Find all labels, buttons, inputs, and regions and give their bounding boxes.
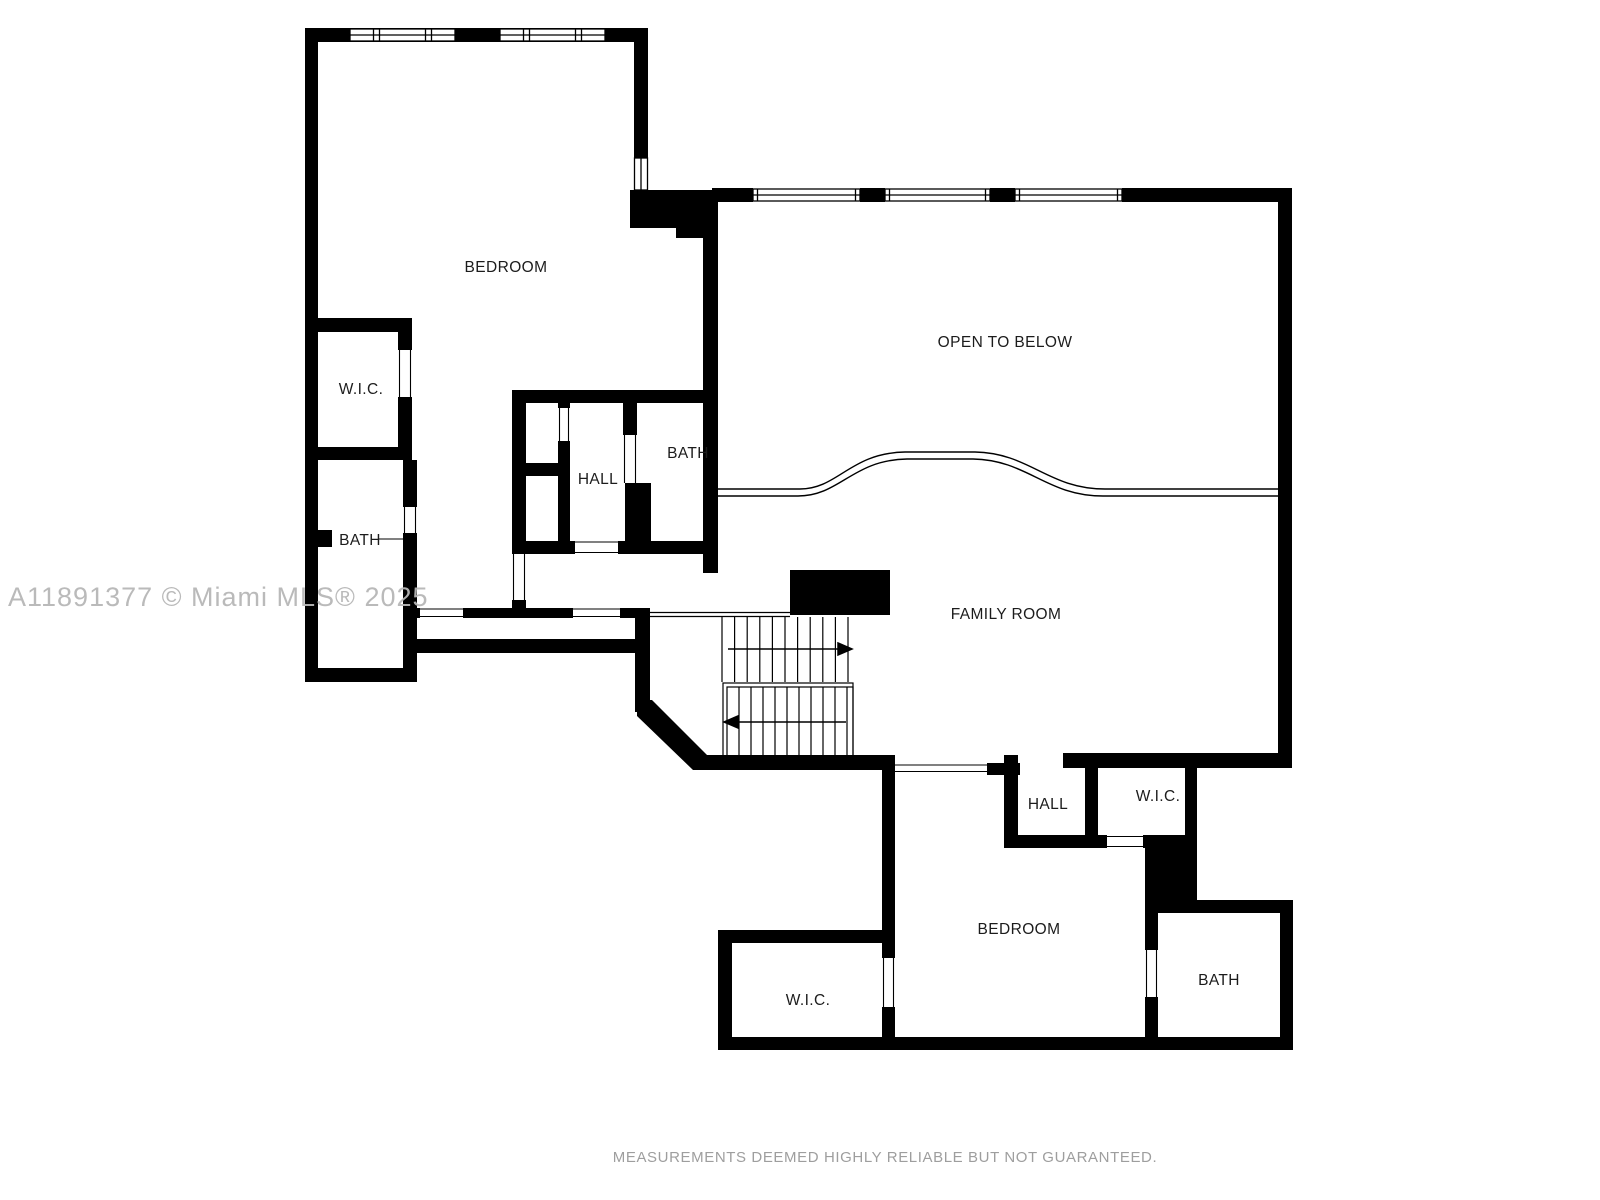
wall	[1280, 900, 1293, 1050]
stair-arrow-right-icon	[838, 643, 852, 655]
wall	[1085, 753, 1098, 848]
room-label-bath-upper-left: BATH	[339, 532, 381, 549]
window-icon	[885, 189, 990, 201]
wall	[512, 463, 560, 476]
wall	[512, 541, 575, 554]
wall	[1185, 753, 1197, 848]
wall	[1145, 913, 1158, 950]
wall	[882, 1007, 895, 1050]
room-label-family-room: FAMILY ROOM	[951, 606, 1062, 623]
wall	[512, 390, 718, 403]
wall	[718, 930, 895, 943]
window-glyphs	[350, 29, 1122, 201]
window-icon	[635, 158, 648, 190]
window-icon	[350, 29, 455, 41]
wall	[635, 608, 650, 712]
room-label-bedroom-lower: BEDROOM	[978, 921, 1061, 938]
wall	[403, 460, 417, 507]
wall	[990, 188, 1015, 202]
disclaimer-text: MEASUREMENTS DEEMED HIGHLY RELIABLE BUT …	[613, 1149, 1158, 1166]
wall	[1145, 848, 1197, 903]
stair-landing-wall	[790, 570, 890, 615]
room-label-wic-lower-left: W.I.C.	[786, 992, 831, 1009]
room-label-bath-upper-mid: BATH	[667, 445, 709, 462]
wall	[623, 390, 637, 435]
window-icon	[753, 189, 860, 201]
room-label-open-to-below: OPEN TO BELOW	[938, 334, 1073, 351]
wall	[703, 228, 718, 573]
wall	[620, 608, 650, 618]
floor-plan: BEDROOM W.I.C. BATH HALL BATH OPEN TO BE…	[0, 0, 1600, 1200]
wall	[305, 668, 417, 682]
walls	[305, 28, 1293, 1050]
wall	[558, 441, 570, 541]
stair-arrow-left-icon	[724, 716, 738, 728]
room-label-wic-upper-left: W.I.C.	[339, 381, 384, 398]
room-label-hall-upper: HALL	[578, 471, 618, 488]
wall	[410, 639, 650, 653]
wall	[634, 28, 648, 158]
room-labels: BEDROOM W.I.C. BATH HALL BATH OPEN TO BE…	[339, 259, 1240, 1009]
wall	[305, 318, 412, 332]
staircase	[650, 570, 890, 760]
room-label-wic-lower-right: W.I.C.	[1136, 788, 1181, 805]
wall	[630, 190, 718, 228]
wall	[318, 530, 332, 547]
wall	[860, 188, 885, 202]
mls-watermark: A11891377 © Miami MLS® 2025	[8, 582, 429, 612]
wall	[712, 188, 753, 202]
wall	[882, 755, 895, 958]
wall	[305, 447, 412, 460]
wall-diagonal	[637, 700, 707, 770]
room-label-bath-lower-right: BATH	[1198, 972, 1240, 989]
wall	[1278, 188, 1292, 768]
wall	[1143, 835, 1197, 848]
wall	[1098, 835, 1107, 848]
wall	[558, 398, 570, 408]
wall	[718, 930, 732, 1050]
wall	[1122, 188, 1292, 202]
wall	[625, 483, 651, 545]
room-label-hall-lower: HALL	[1028, 796, 1068, 813]
wall	[512, 600, 526, 618]
archway-edge	[718, 452, 1278, 496]
wall	[718, 1037, 1293, 1050]
wall	[1145, 997, 1158, 1050]
wall	[1004, 835, 1095, 848]
wall	[1004, 755, 1018, 848]
room-label-bedroom-upper: BEDROOM	[465, 259, 548, 276]
stair-direction-arrows	[724, 643, 852, 728]
window-icon	[500, 29, 605, 41]
window-icon	[1015, 189, 1122, 201]
wall	[1145, 900, 1293, 913]
